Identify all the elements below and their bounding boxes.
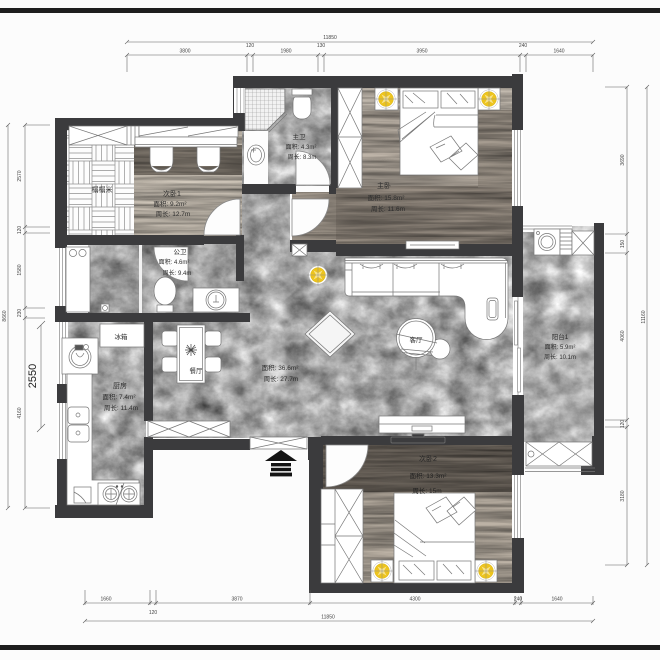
svg-text:次卧2: 次卧2 (419, 454, 437, 463)
svg-text:240: 240 (519, 43, 528, 49)
svg-text:周长: 12.7m: 周长: 12.7m (156, 209, 191, 218)
svg-text:周长: 9.4m: 周长: 9.4m (163, 269, 192, 277)
svg-text:120: 120 (149, 610, 158, 616)
svg-text:3950: 3950 (416, 49, 427, 55)
svg-text:2570: 2570 (17, 170, 23, 181)
svg-text:1980: 1980 (280, 49, 291, 55)
svg-text:主卫: 主卫 (293, 132, 307, 141)
svg-text:周长: 8.3m: 周长: 8.3m (288, 153, 317, 161)
svg-text:公卫: 公卫 (174, 248, 188, 256)
svg-text:榻榻米: 榻榻米 (92, 185, 113, 194)
svg-text:周长: 11.6m: 周长: 11.6m (371, 204, 405, 213)
svg-text:客厅: 客厅 (410, 335, 424, 344)
svg-text:130: 130 (317, 43, 326, 49)
svg-text:150: 150 (620, 240, 626, 249)
svg-text:4300: 4300 (409, 597, 420, 603)
svg-text:3180: 3180 (620, 490, 626, 501)
svg-text:11850: 11850 (321, 615, 335, 621)
svg-text:1580: 1580 (17, 264, 23, 275)
svg-text:面积: 4.6m²: 面积: 4.6m² (159, 258, 190, 266)
svg-text:240: 240 (514, 597, 523, 603)
svg-text:周长: 11.4m: 周长: 11.4m (104, 403, 138, 412)
svg-text:次卧1: 次卧1 (163, 189, 181, 198)
svg-text:3690: 3690 (620, 154, 626, 165)
svg-text:面积: 5.9m²: 面积: 5.9m² (545, 343, 576, 351)
svg-text:周长: 10.1m: 周长: 10.1m (544, 353, 576, 361)
svg-text:4160: 4160 (17, 407, 23, 418)
svg-text:2550: 2550 (27, 364, 39, 388)
svg-text:1660: 1660 (100, 597, 111, 603)
svg-text:面积: 7.4m²: 面积: 7.4m² (102, 392, 136, 401)
svg-text:3870: 3870 (231, 597, 242, 603)
svg-text:阳台1: 阳台1 (552, 332, 569, 341)
svg-text:主卧: 主卧 (377, 181, 391, 190)
svg-text:冰箱: 冰箱 (115, 332, 129, 341)
svg-text:面积: 9.2m²: 面积: 9.2m² (153, 199, 187, 208)
svg-text:周长: 27.7m: 周长: 27.7m (264, 374, 299, 383)
svg-text:1640: 1640 (551, 597, 562, 603)
svg-text:厨房: 厨房 (113, 381, 127, 390)
svg-text:周长: 15m: 周长: 15m (412, 486, 441, 495)
svg-text:1640: 1640 (553, 49, 564, 55)
svg-text:8660: 8660 (2, 310, 8, 321)
svg-text:230: 230 (17, 309, 23, 318)
svg-text:11160: 11160 (641, 310, 647, 323)
svg-text:面积: 36.6m²: 面积: 36.6m² (262, 363, 300, 372)
svg-text:120: 120 (620, 420, 626, 429)
svg-text:120: 120 (246, 43, 255, 49)
svg-text:4060: 4060 (620, 330, 626, 341)
svg-text:面积: 15.8m²: 面积: 15.8m² (368, 193, 406, 202)
svg-text:面积: 13.3m²: 面积: 13.3m² (410, 471, 448, 480)
svg-text:11850: 11850 (323, 35, 337, 41)
svg-text:餐厅: 餐厅 (190, 366, 204, 375)
svg-text:面积: 4.3m²: 面积: 4.3m² (286, 143, 317, 151)
svg-text:120: 120 (17, 226, 23, 235)
svg-text:3800: 3800 (179, 49, 190, 55)
